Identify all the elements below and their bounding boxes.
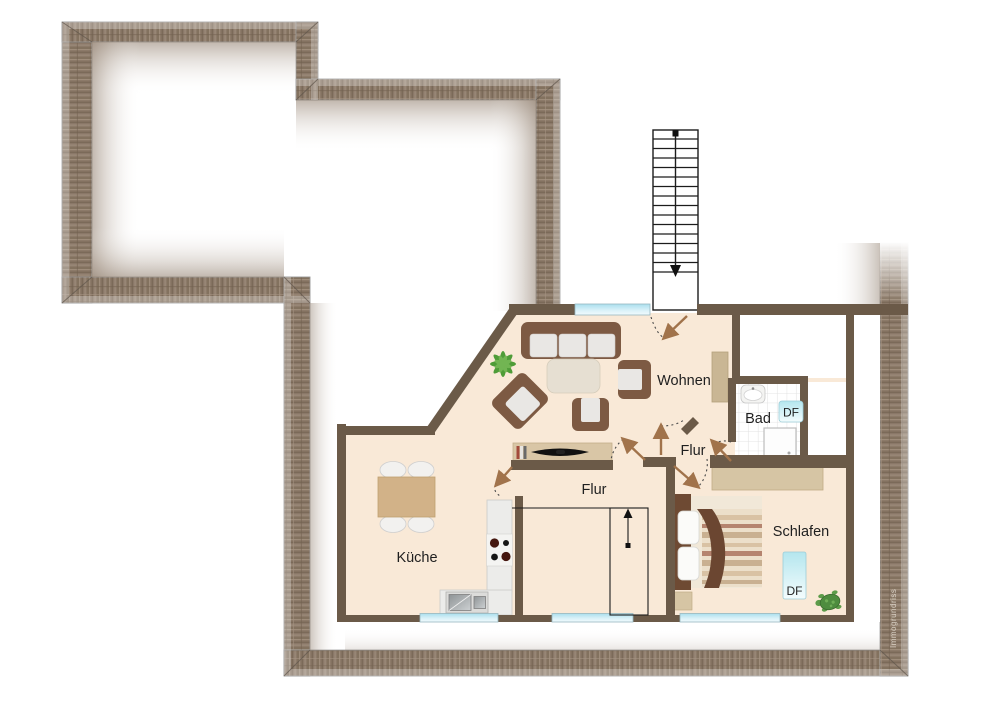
window-bottom-kitchen bbox=[420, 614, 498, 623]
dining-table bbox=[378, 477, 435, 517]
wardrobe bbox=[712, 466, 823, 490]
sofa bbox=[521, 322, 621, 359]
room-label-flur-oben: Flur bbox=[681, 443, 706, 459]
storage-cabinet bbox=[712, 352, 728, 402]
df-label-schlafen: DF bbox=[787, 584, 803, 598]
window-top bbox=[575, 304, 650, 315]
floor-plan-svg: Wohnen Bad Flur Flur Küche Schlafen DF D… bbox=[0, 0, 1000, 706]
bedroom-bench bbox=[674, 592, 692, 610]
window-bottom-schlafen bbox=[680, 614, 780, 623]
armchair-front bbox=[572, 398, 609, 431]
watermark: Immogrundriss bbox=[889, 589, 898, 648]
room-label-bad: Bad bbox=[745, 411, 771, 427]
bed bbox=[675, 494, 762, 590]
floor-plan-page: Wohnen Bad Flur Flur Küche Schlafen DF D… bbox=[0, 0, 1000, 706]
df-label-bad: DF bbox=[783, 406, 799, 420]
right-wall-top-fade bbox=[878, 241, 910, 303]
room-label-kueche: Küche bbox=[396, 550, 437, 566]
stove bbox=[487, 534, 513, 566]
coffee-table bbox=[547, 359, 600, 393]
armchair-right bbox=[618, 360, 651, 399]
room-label-wohnen: Wohnen bbox=[657, 373, 711, 389]
bathroom-sink bbox=[741, 385, 765, 403]
shower bbox=[764, 428, 796, 459]
stair-start-marker-lower bbox=[626, 543, 631, 548]
tv-sideboard bbox=[513, 443, 612, 462]
room-label-flur-unten: Flur bbox=[582, 482, 607, 498]
room-label-schlafen: Schlafen bbox=[773, 524, 829, 540]
staircase-upper bbox=[653, 130, 698, 310]
plant-icon bbox=[490, 351, 516, 377]
kitchen-sink bbox=[446, 592, 488, 613]
stair-start-marker bbox=[673, 131, 679, 137]
